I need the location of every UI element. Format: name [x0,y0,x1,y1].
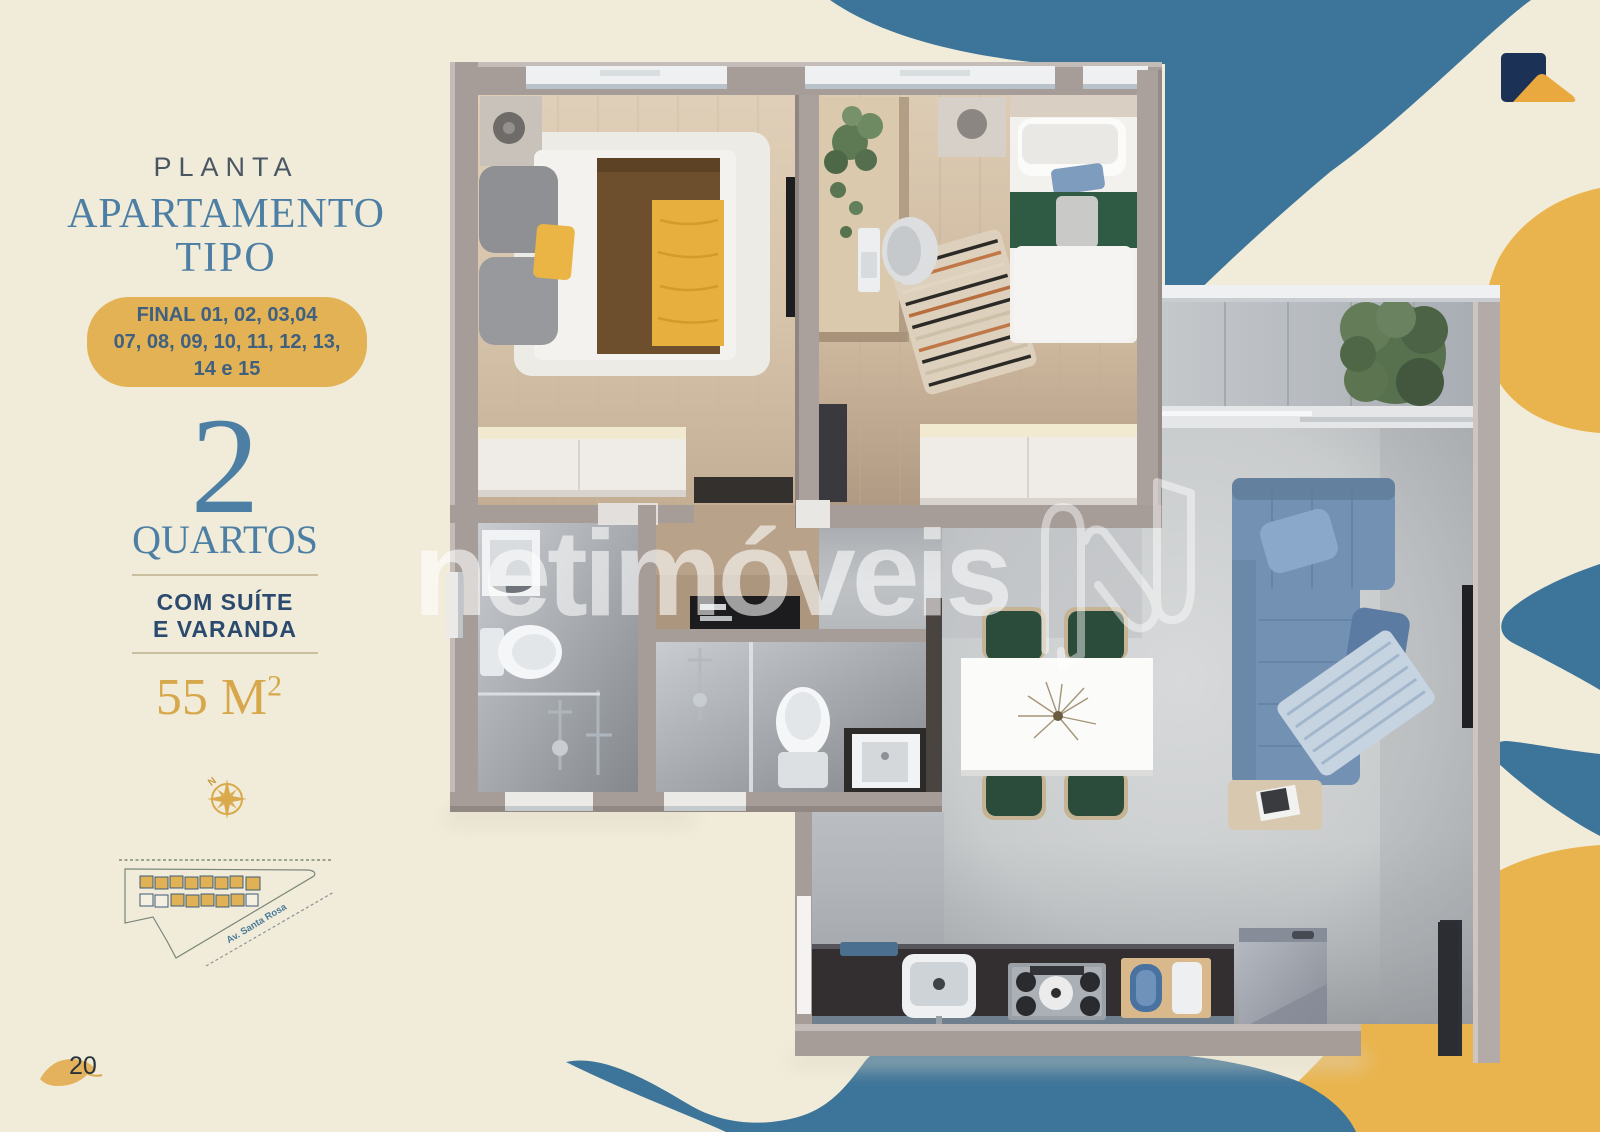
svg-text:netimóveis: netimóveis [413,505,1013,641]
